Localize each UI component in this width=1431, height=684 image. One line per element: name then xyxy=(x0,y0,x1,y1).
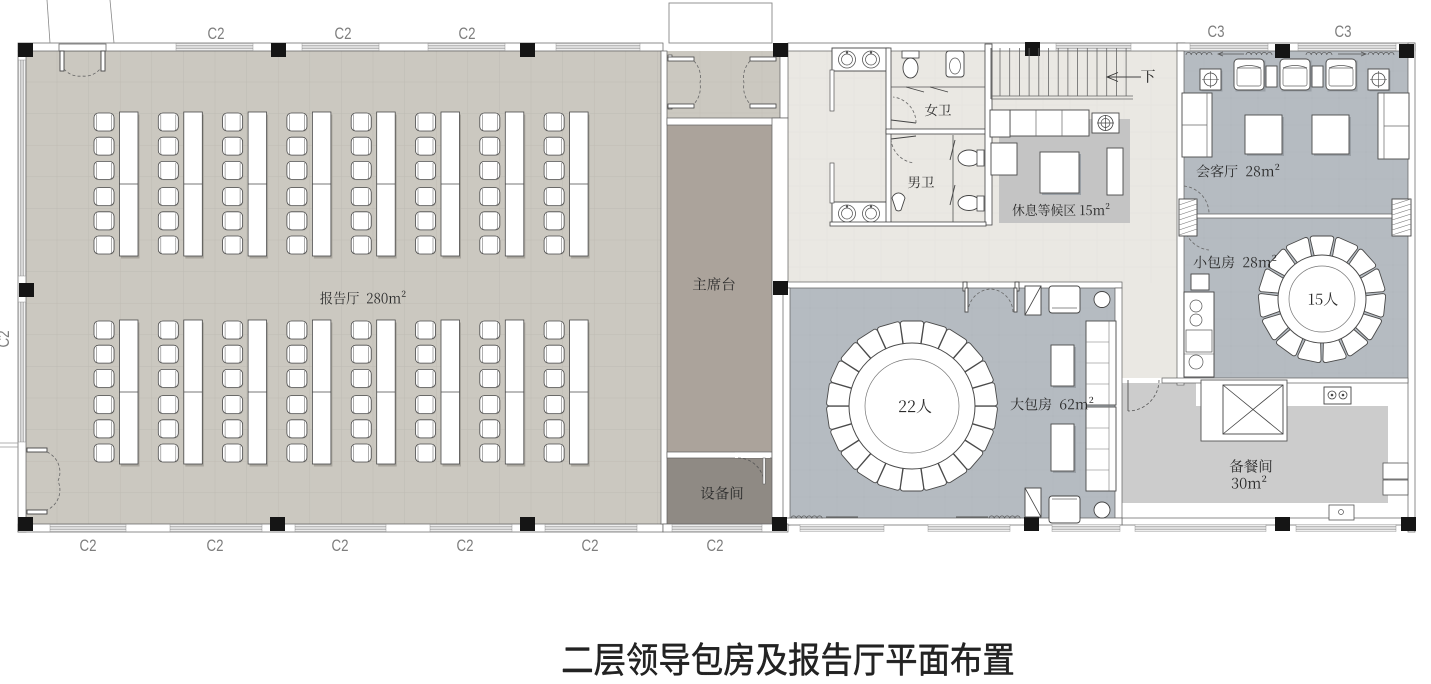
svg-text:C2: C2 xyxy=(332,536,349,555)
svg-text:C2: C2 xyxy=(459,24,476,43)
svg-text:C2: C2 xyxy=(0,331,13,348)
svg-text:C2: C2 xyxy=(582,536,599,555)
svg-text:C2: C2 xyxy=(335,24,352,43)
svg-text:C2: C2 xyxy=(707,536,724,555)
svg-text:C3: C3 xyxy=(1335,22,1352,41)
svg-text:C2: C2 xyxy=(207,536,224,555)
svg-text:C2: C2 xyxy=(208,24,225,43)
svg-text:C3: C3 xyxy=(1208,22,1225,41)
svg-text:C2: C2 xyxy=(80,536,97,555)
svg-text:C2: C2 xyxy=(457,536,474,555)
